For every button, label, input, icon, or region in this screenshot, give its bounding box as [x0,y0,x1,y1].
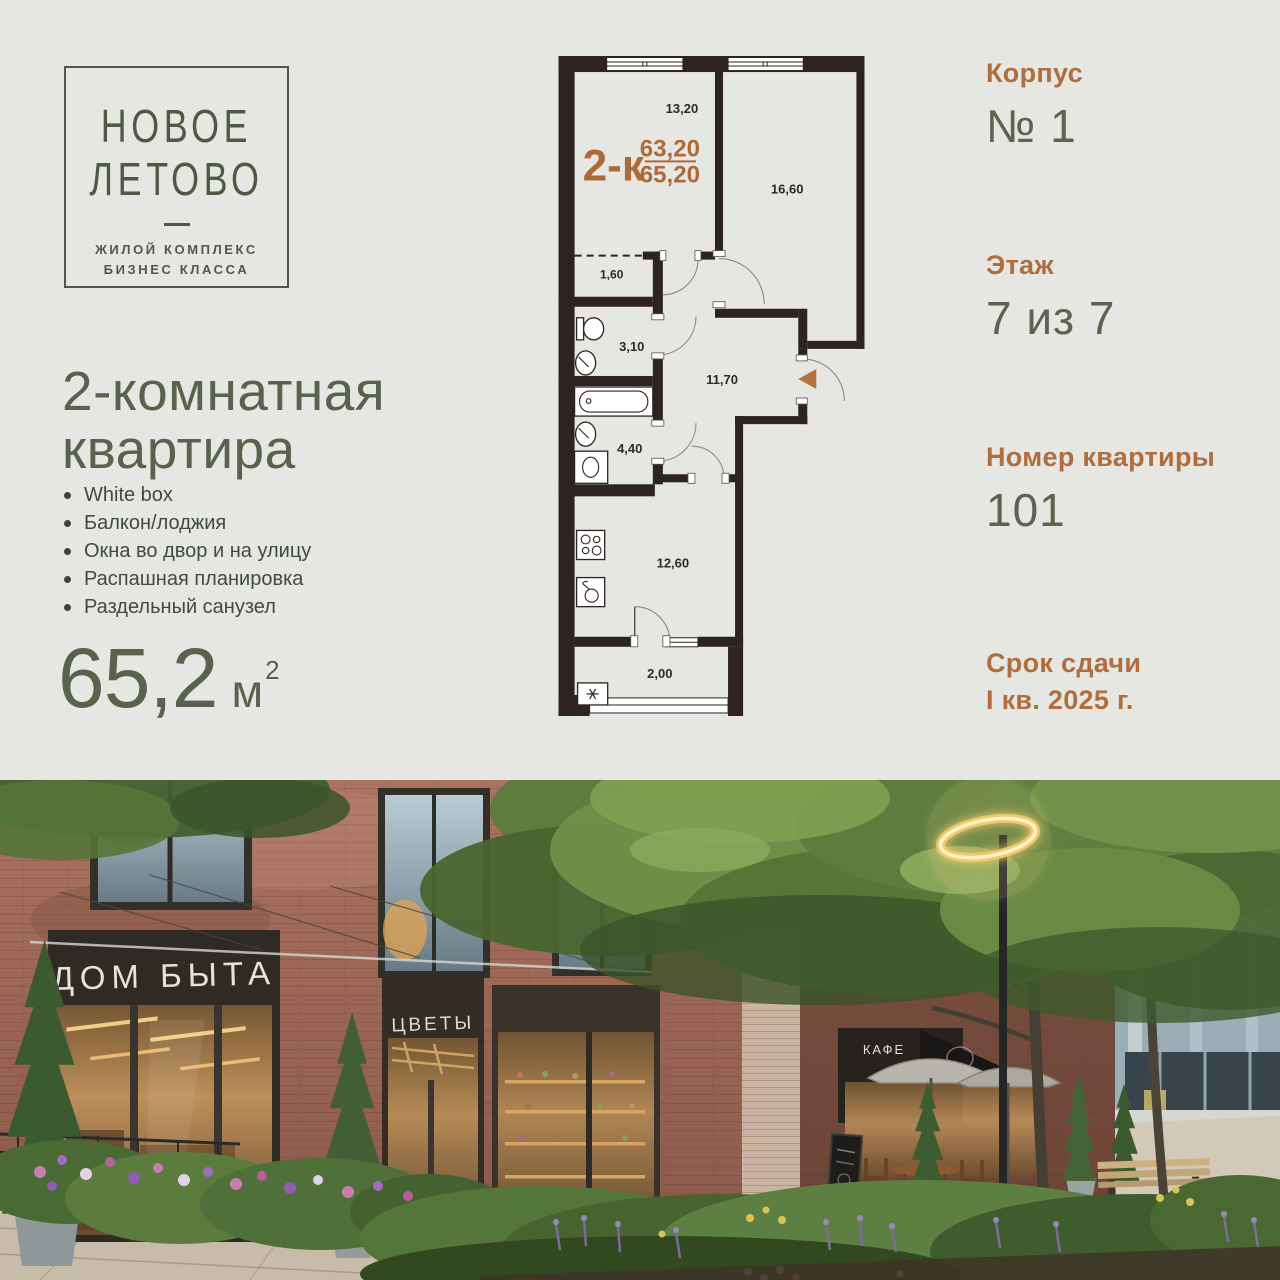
room-wc-area: 3,10 [619,339,644,354]
apartment-number-info: Номер квартиры 101 [986,442,1266,537]
stove-icon [577,530,605,559]
floor-label: Этаж [986,250,1266,281]
feature-list: White box Балкон/лоджия Окна во двор и н… [64,484,311,624]
room-living-area: 13,20 [666,101,699,116]
floor-value: 7 из 7 [986,291,1266,345]
bullet-dot [64,576,71,583]
plan-area-lower: 65,20 [640,161,700,188]
apartment-title-line2: квартира [62,420,385,478]
room-bathroom-area: 4,40 [617,441,642,456]
sink2-icon [576,422,596,446]
apartment-title: 2-комнатная квартира [62,362,385,479]
area-superscript: 2 [265,655,279,685]
toilet-icon [577,318,604,340]
room-balcony-area: 2,00 [647,666,672,681]
room-hall-area: 11,70 [706,372,738,387]
building-info: Корпус № 1 [986,58,1266,153]
feature-item: Окна во двор и на улицу [64,540,311,563]
bathtub-icon [575,387,653,416]
bullet-dot [64,492,71,499]
deadline-info: Срок сдачи I кв. 2025 г. [986,646,1266,716]
logo-subtitle-1: ЖИЛОЙ КОМПЛЕКС [66,240,287,260]
feature-item: Распашная планировка [64,568,311,591]
washing-machine-icon [575,451,608,483]
feature-text: Балкон/лоджия [84,512,226,535]
logo-line-2: ЛЕТОВО [75,150,278,212]
feature-text: Раздельный санузел [84,596,276,619]
feature-text: Окна во двор и на улицу [84,540,311,563]
apartment-number-label: Номер квартиры [986,442,1266,473]
building-value: № 1 [986,99,1266,153]
real-estate-flyer: НОВОЕ ЛЕТОВО ЖИЛОЙ КОМПЛЕКС БИЗНЕС КЛАСС… [0,0,1280,1280]
bullet-dot [64,520,71,527]
deadline-label: Срок сдачи [986,646,1266,681]
floor-info: Этаж 7 из 7 [986,250,1266,345]
apartment-title-line1: 2-комнатная [62,362,385,420]
logo: НОВОЕ ЛЕТОВО ЖИЛОЙ КОМПЛЕКС БИЗНЕС КЛАСС… [64,66,289,288]
kitchen-sink-icon [577,578,605,607]
sign-tsvety: ЦВЕТЫ [391,1013,475,1037]
feature-item: Балкон/лоджия [64,512,311,535]
feature-item: White box [64,484,311,507]
plan-area-upper: 63,20 [640,135,700,162]
total-area: 65,2м2 [58,630,280,727]
apartment-number-value: 101 [986,483,1266,537]
entrance-arrow-icon [798,369,816,389]
sink-icon [576,351,596,375]
floor-plan: 2-к 63,20 65,20 13,20 16,60 1,60 3,10 4,… [558,56,865,718]
room-bedroom-area: 16,60 [771,181,804,196]
building-photo: ДОМ БЫТА ЦВЕТЫ [0,780,1280,1280]
logo-subtitle-2: БИЗНЕС КЛАССА [66,260,287,280]
area-unit: м [232,665,264,717]
sign-cafe: КАФЕ [863,1042,905,1057]
building-label: Корпус [986,58,1266,89]
room-kitchen-area: 12,60 [657,556,690,571]
plan-type-label: 2-к [583,141,645,190]
feature-text: White box [84,484,173,507]
bullet-dot [64,604,71,611]
deadline-value: I кв. 2025 г. [986,685,1266,716]
logo-divider [164,223,190,226]
feature-text: Распашная планировка [84,568,303,591]
sign-dom-byta: ДОМ БЫТА [51,954,277,997]
feature-item: Раздельный санузел [64,596,311,619]
air-conditioner-icon [578,683,608,705]
bullet-dot [64,548,71,555]
room-wardrobe-area: 1,60 [600,268,624,282]
area-number: 65,2 [58,631,218,725]
